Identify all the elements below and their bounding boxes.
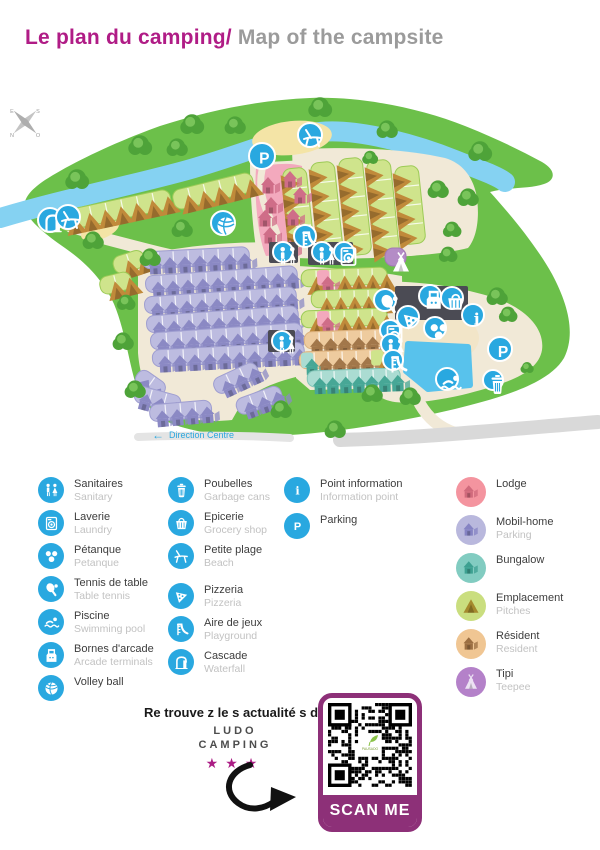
- legend-label-en: Information point: [320, 491, 403, 504]
- legend-item-bornes-d-arcade: Bornes d'arcadeArcade terminals: [38, 642, 154, 669]
- legend-label-fr: Lodge: [496, 478, 527, 491]
- arcade-icon: [38, 642, 64, 668]
- legend-item-tipi: TipiTeepee: [456, 667, 563, 697]
- paddle-icon: [38, 576, 64, 602]
- legend-column-services: PoubellesGarbage cansEpicerieGrocery sho…: [168, 477, 270, 682]
- legend-label-fr: Cascade: [204, 650, 247, 663]
- legend-label-fr: Pizzeria: [204, 584, 243, 597]
- house-icon: [456, 553, 486, 583]
- legend-label-fr: Résident: [496, 630, 539, 643]
- legend-label-fr: Volley ball: [74, 676, 124, 689]
- legend-label-en: Garbage cans: [204, 491, 270, 504]
- legend-label-fr: Poubelles: [204, 478, 270, 491]
- legend-label-fr: Tennis de table: [74, 577, 148, 590]
- beachchair-icon: [168, 543, 194, 569]
- legend-item-petite-plage: Petite plageBeach: [168, 543, 270, 570]
- waterfall-icon: [168, 649, 194, 675]
- direction-centre-label: ← Direction Centre: [152, 430, 234, 440]
- left-arrow-icon: ←: [152, 431, 164, 440]
- legend-label-en: Table tennis: [74, 590, 148, 603]
- legend-label-en: Laundry: [74, 524, 112, 537]
- legend-label-fr: Sanitaires: [74, 478, 123, 491]
- legend-label-fr: Petite plage: [204, 544, 262, 557]
- legend-label-en: Beach: [204, 557, 262, 570]
- legend-item-sanitaires: SanitairesSanitary: [38, 477, 154, 504]
- title-french: Le plan du camping/: [25, 26, 232, 49]
- trash-icon: [168, 477, 194, 503]
- legend-column-info: Point informationInformation pointParkin…: [284, 477, 403, 548]
- legend-label-en: Playground: [204, 630, 262, 643]
- legend-label-fr: Pétanque: [74, 544, 121, 557]
- campsite-map: i P: [0, 88, 600, 460]
- legend-item-lodge: Lodge: [456, 477, 563, 507]
- slide-icon: [168, 616, 194, 642]
- legend-label-en: Pizzeria: [204, 597, 243, 610]
- map-icon-petanque: [424, 317, 447, 340]
- legend-label-fr: Bungalow: [496, 554, 544, 567]
- direction-text: Direction Centre: [169, 430, 234, 440]
- house-icon: [456, 629, 486, 659]
- legend-item-p-tanque: PétanquePetanque: [38, 543, 154, 570]
- legend-label-fr: Tipi: [496, 668, 530, 681]
- qr-code: PAUSADO: [328, 703, 412, 787]
- compass-rose: ESNO: [10, 108, 41, 139]
- legend-label-en: Waterfall: [204, 663, 247, 676]
- legend-label-fr: Emplacement: [496, 592, 563, 605]
- scan-me-label: SCAN ME: [323, 795, 417, 827]
- legend-label-en: Resident: [496, 643, 539, 656]
- legend-label-en: Sanitary: [74, 491, 123, 504]
- legend-label-fr: Laverie: [74, 511, 112, 524]
- volley-icon: [38, 675, 64, 701]
- legend-label-en: Swimming pool: [74, 623, 145, 636]
- map-icon-petite-plage: [56, 205, 80, 229]
- page-title: Le plan du camping/ Map of the campsite: [25, 26, 444, 50]
- map-icon-parking: [249, 143, 275, 169]
- legend-item-laverie: LaverieLaundry: [38, 510, 154, 537]
- map-icon-volley-ball: [211, 211, 235, 235]
- compass-letter: O: [36, 133, 41, 139]
- legend-label-fr: Aire de jeux: [204, 617, 262, 630]
- info-icon: [284, 477, 310, 503]
- legend-label-en: Arcade terminals: [74, 656, 154, 669]
- legend-item-emplacement: EmplacementPitches: [456, 591, 563, 621]
- legend-label-en: Grocery shop: [204, 524, 267, 537]
- compass-letter: E: [10, 109, 14, 115]
- wc-icon: [38, 477, 64, 503]
- map-plot-row-bungalow: [307, 367, 410, 394]
- legend-item-point-information: Point informationInformation point: [284, 477, 403, 504]
- map-icon-parking: [488, 337, 512, 361]
- legend-label-en: Petanque: [74, 557, 121, 570]
- map-icon-bornes-arcade: [419, 285, 441, 309]
- legend-item-bungalow: Bungalow: [456, 553, 563, 583]
- legend-item-aire-de-jeux: Aire de jeuxPlayground: [168, 616, 270, 643]
- washer-icon: [38, 510, 64, 536]
- legend-label-en: Parking: [496, 529, 553, 542]
- house-icon: [456, 477, 486, 507]
- map-icon-petite-plage: [298, 123, 322, 147]
- map-icon-epicerie: [441, 287, 463, 310]
- tent-icon: [456, 591, 486, 621]
- tipi-icon: [456, 667, 486, 697]
- legend-column-facilities: SanitairesSanitaryLaverieLaundryPétanque…: [38, 477, 154, 707]
- legend-label-fr: Parking: [320, 514, 357, 527]
- qr-code-panel: PAUSADO SCAN ME: [318, 693, 422, 832]
- legend-label-fr: Point information: [320, 478, 403, 491]
- legend-item-tennis-de-table: Tennis de tableTable tennis: [38, 576, 154, 603]
- compass-letter: S: [36, 109, 40, 115]
- legend-item-volley-ball: Volley ball: [38, 675, 154, 701]
- hand-drawn-arrow-icon: [208, 760, 300, 822]
- P-icon: [284, 513, 310, 539]
- house-icon: [456, 515, 486, 545]
- swimmer-icon: [38, 609, 64, 635]
- legend-label-fr: Epicerie: [204, 511, 267, 524]
- legend-column-accommodation: LodgeMobil-homeParkingBungalowEmplacemen…: [456, 477, 563, 705]
- legend-item-r-sident: RésidentResident: [456, 629, 563, 659]
- legend-item-parking: Parking: [284, 513, 403, 539]
- legend-item-poubelles: PoubellesGarbage cans: [168, 477, 270, 504]
- legend-item-piscine: PiscineSwimming pool: [38, 609, 154, 636]
- qr-logo-text: PAUSADO: [362, 747, 379, 751]
- legend-item-mobil-home: Mobil-homeParking: [456, 515, 563, 545]
- legend-label-fr: Bornes d'arcade: [74, 643, 154, 656]
- map-icon-aire-de-jeux: [294, 225, 317, 248]
- legend-label-fr: Mobil-home: [496, 516, 553, 529]
- legend-label-en: Pitches: [496, 605, 563, 618]
- title-english: Map of the campsite: [232, 26, 444, 49]
- legend-item-epicerie: EpicerieGrocery shop: [168, 510, 270, 537]
- basket-icon: [168, 510, 194, 536]
- legend-item-cascade: CascadeWaterfall: [168, 649, 270, 676]
- campsite-flyer: Le plan du camping/ Map of the campsite …: [0, 0, 600, 850]
- petanque-icon: [38, 543, 64, 569]
- legend-label-en: Teepee: [496, 681, 530, 694]
- pizza-icon: [168, 583, 194, 609]
- legend-label-fr: Piscine: [74, 610, 145, 623]
- compass-letter: N: [10, 133, 14, 139]
- legend-item-pizzeria: PizzeriaPizzeria: [168, 583, 270, 610]
